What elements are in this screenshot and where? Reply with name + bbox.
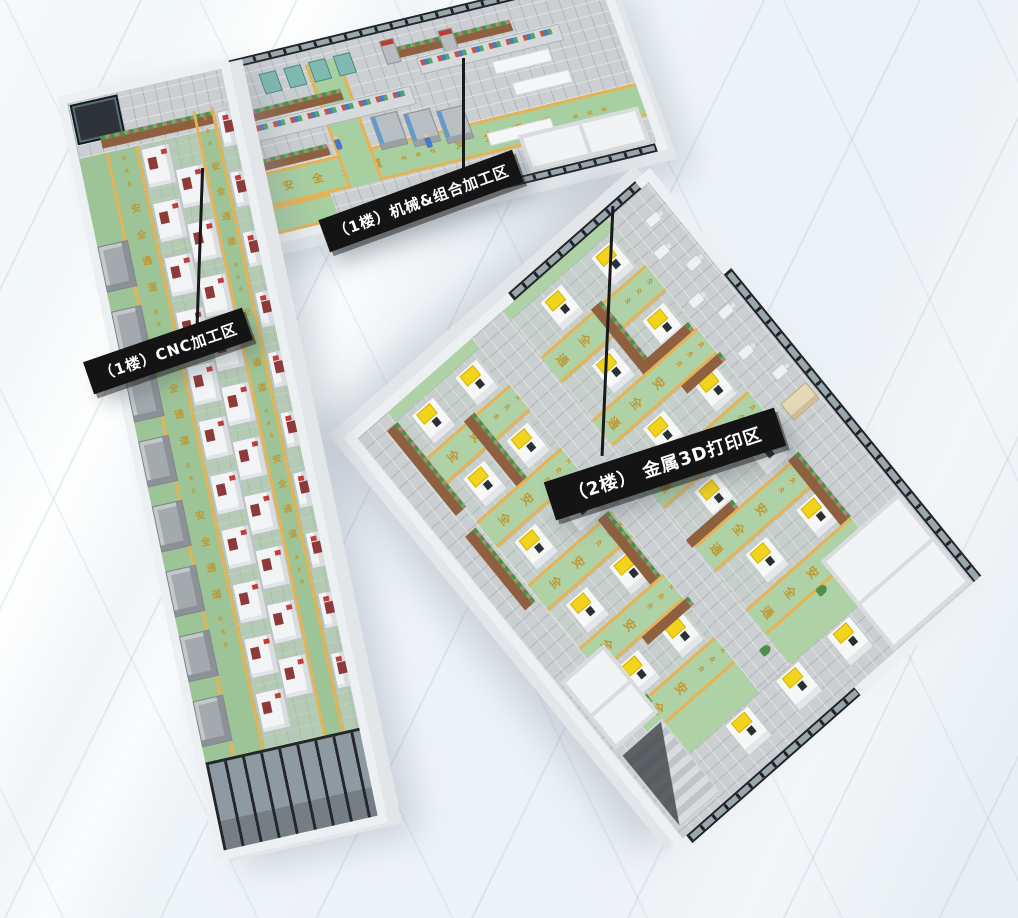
robot-arm-red <box>379 38 402 65</box>
room-wall <box>578 124 592 153</box>
work-table <box>511 69 573 96</box>
lathe-machine <box>283 64 307 88</box>
room-wall <box>591 681 631 717</box>
lathe-machine <box>258 70 282 94</box>
factory-3d-render: ««« 安 全 通 道 ««« 安 全 通 道 ««« ««« 安 全 通 道 … <box>0 0 1018 918</box>
machining-center <box>370 111 408 151</box>
room-wall <box>859 538 933 604</box>
